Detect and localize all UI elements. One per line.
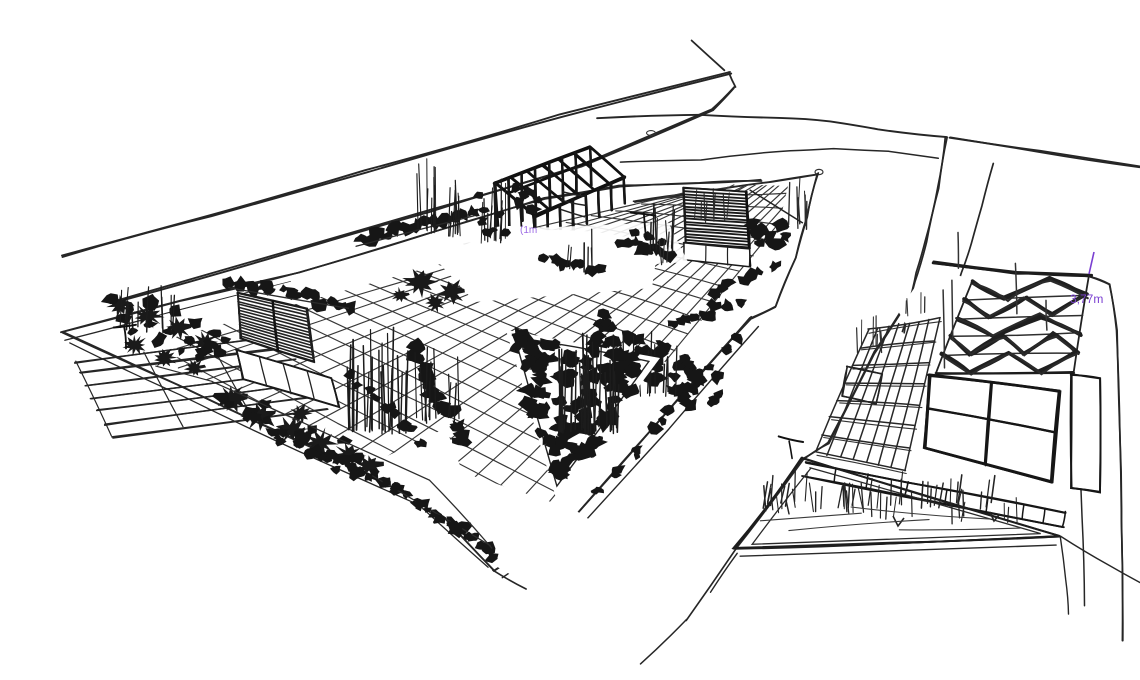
svg-text:(1m: (1m: [520, 225, 537, 236]
svg-text:3,77m: 3,77m: [1070, 292, 1103, 306]
